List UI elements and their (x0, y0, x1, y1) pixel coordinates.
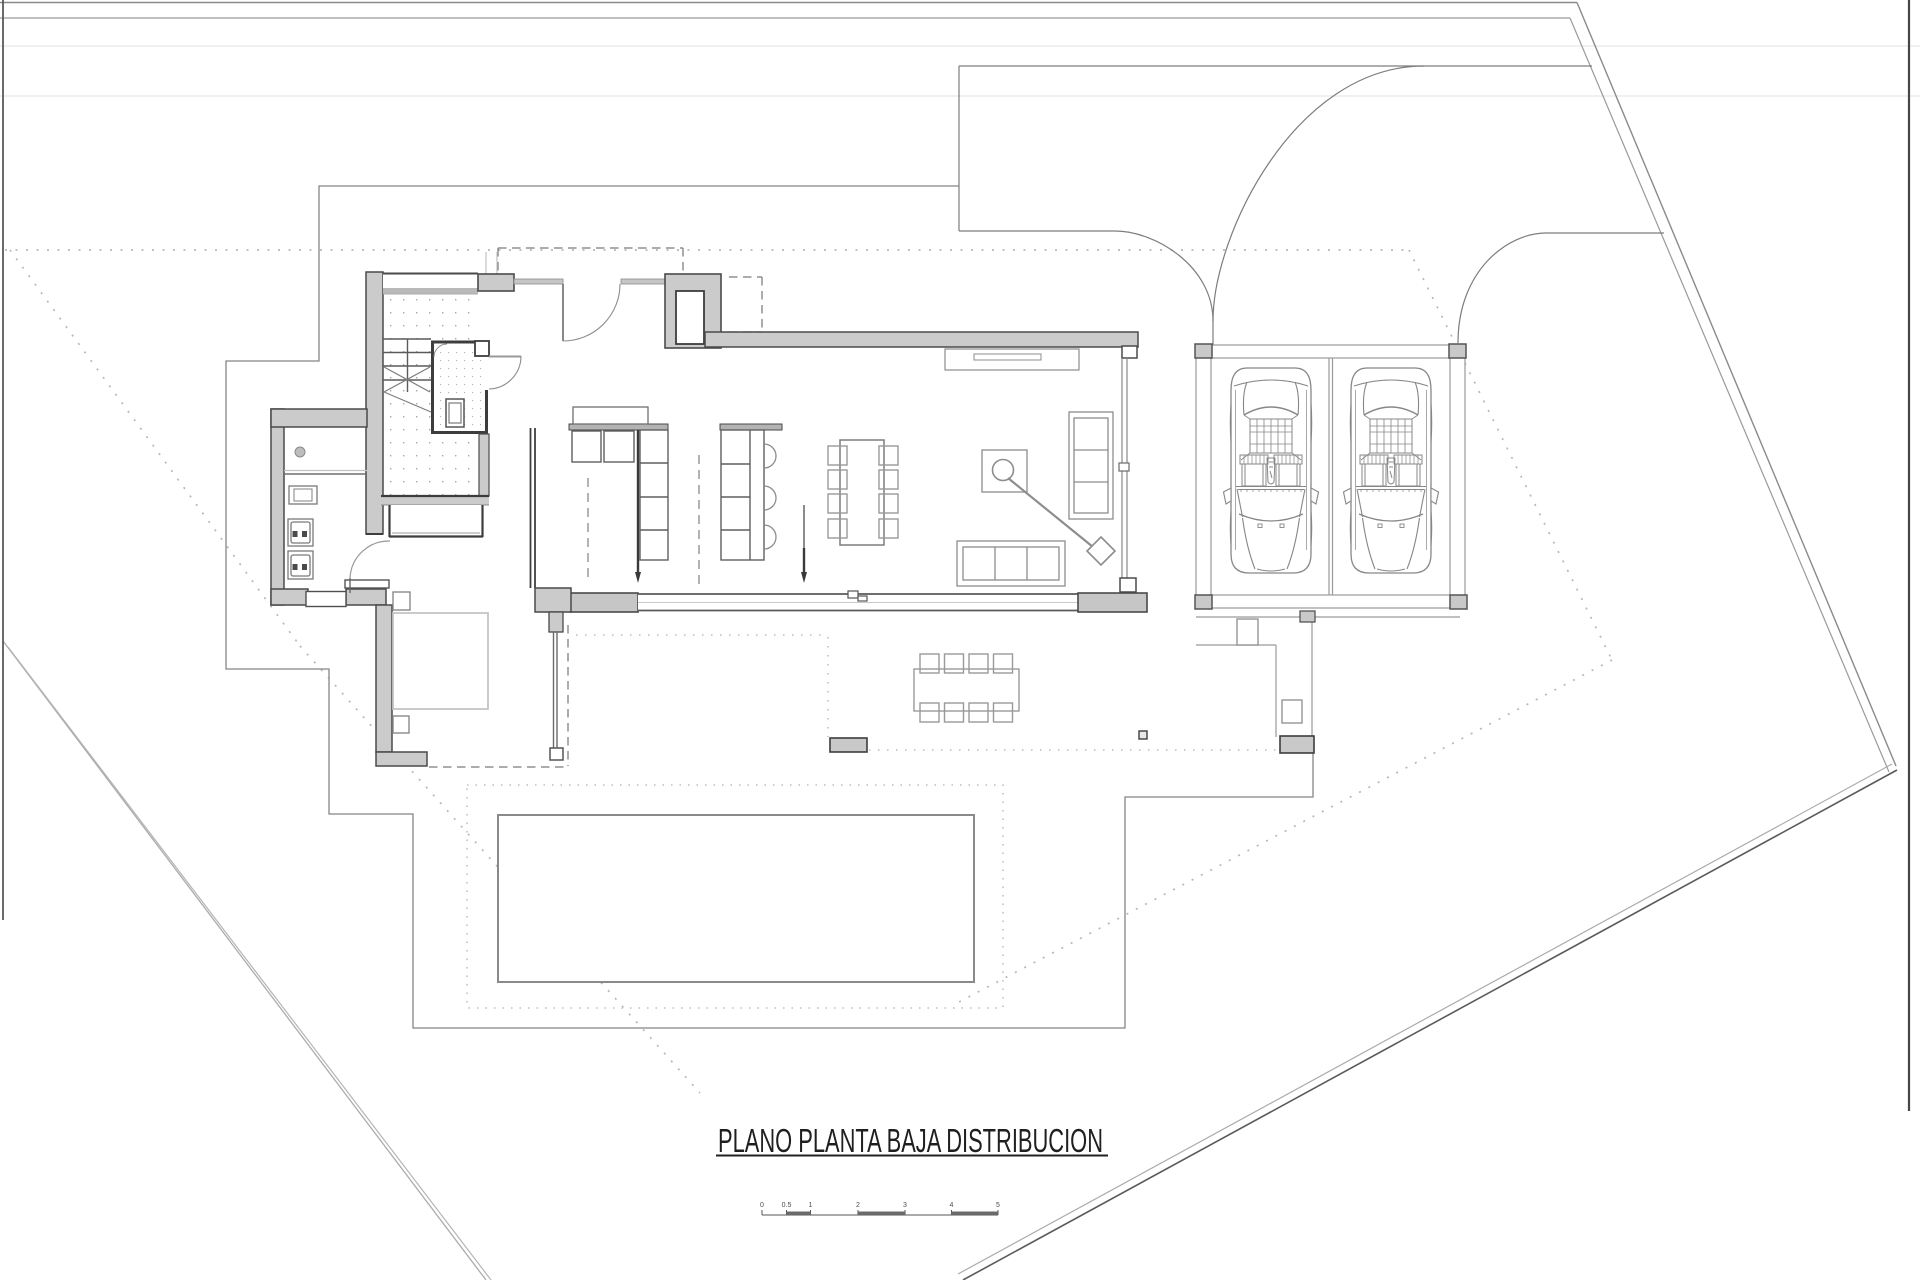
svg-text:3: 3 (903, 1202, 907, 1209)
svg-text:2: 2 (856, 1202, 860, 1209)
svg-text:4: 4 (950, 1202, 954, 1209)
svg-text:5: 5 (996, 1202, 1000, 1209)
svg-text:1: 1 (809, 1202, 813, 1209)
svg-text:0.5: 0.5 (782, 1202, 792, 1209)
svg-text:0: 0 (760, 1202, 764, 1209)
svg-text:PLANO PLANTA BAJA DISTRIBUCION: PLANO PLANTA BAJA DISTRIBUCION (718, 1122, 1103, 1159)
